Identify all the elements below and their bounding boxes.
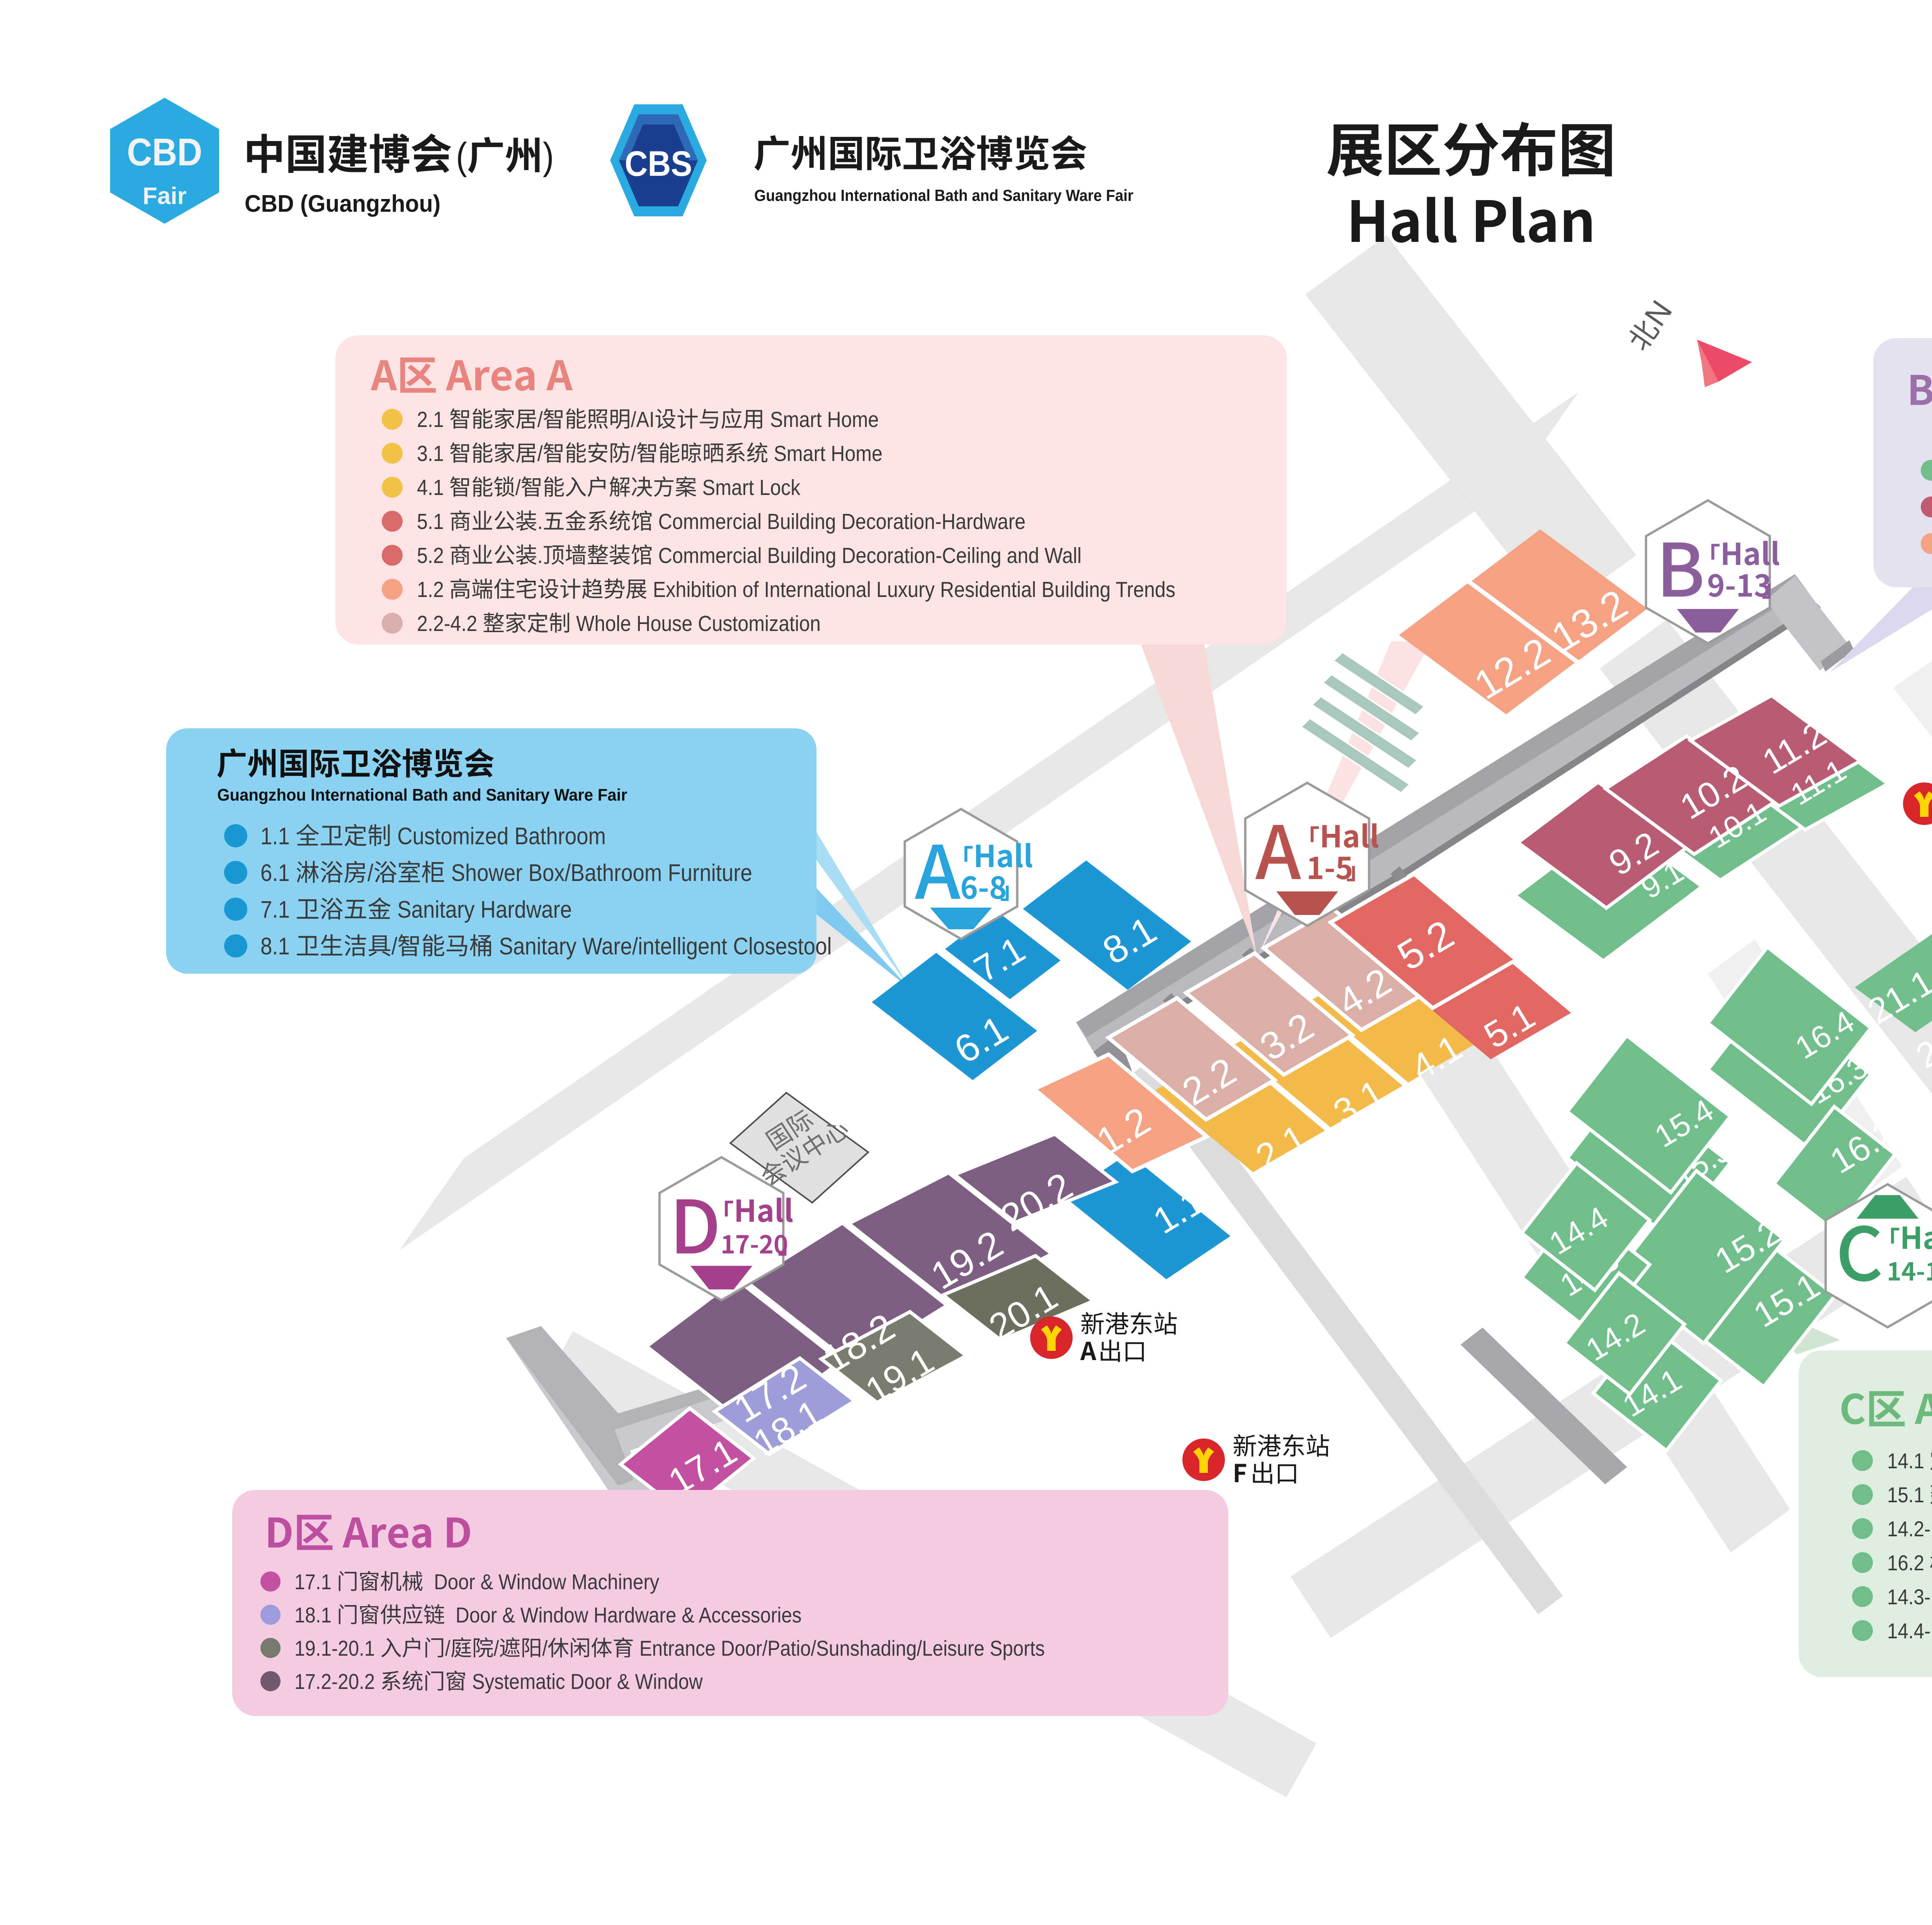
svg-text:CBD: CBD xyxy=(127,131,202,174)
svg-text:Entrance Door/Patio/Sunshading: Entrance Door/Patio/Sunshading/Leisure S… xyxy=(634,1636,1045,1660)
svg-text:/: / xyxy=(537,407,543,432)
svg-text:.: . xyxy=(537,509,543,534)
svg-text:Door & Window Machinery: Door & Window Machinery xyxy=(423,1570,660,1594)
svg-text:Smart Lock: Smart Lock xyxy=(697,475,801,500)
svg-text:5.1: 5.1 xyxy=(417,509,449,534)
svg-text:/: / xyxy=(391,933,398,960)
svg-text:Guangzhou International Bath a: Guangzhou International Bath and Sanitar… xyxy=(754,186,1133,204)
svg-text:14.2-15.2: 14.2-15.2 xyxy=(1887,1517,1932,1541)
svg-text:Fair: Fair xyxy=(143,183,187,209)
svg-text:Customized Bathroom: Customized Bathroom xyxy=(391,823,606,850)
svg-text:): ) xyxy=(543,135,554,177)
svg-text:14.3-16.3: 14.3-16.3 xyxy=(1887,1585,1932,1609)
svg-text:/: / xyxy=(494,1636,499,1660)
svg-text:4.1: 4.1 xyxy=(417,475,449,500)
svg-text:1.2: 1.2 xyxy=(417,577,449,602)
svg-text:/: / xyxy=(537,441,543,466)
svg-text:6.1: 6.1 xyxy=(260,860,296,886)
svg-text:Sanitary Ware/intelligent Clos: Sanitary Ware/intelligent Closestool xyxy=(493,933,832,960)
svg-text:18.1: 18.1 xyxy=(294,1603,337,1627)
svg-text:Smart Home: Smart Home xyxy=(765,407,879,432)
svg-text:(: ( xyxy=(456,135,467,177)
svg-text:Guangzhou International Bath a: Guangzhou International Bath and Sanitar… xyxy=(217,786,627,804)
svg-text:/: / xyxy=(542,1636,548,1660)
svg-text:8.1: 8.1 xyxy=(260,933,296,960)
svg-text:.: . xyxy=(537,543,543,568)
svg-text:1.1: 1.1 xyxy=(260,823,296,850)
svg-text:Whole House Customization: Whole House Customization xyxy=(571,611,821,636)
svg-text:17.1: 17.1 xyxy=(294,1570,337,1594)
svg-text:Systematic Door & Window: Systematic Door & Window xyxy=(467,1669,703,1694)
svg-text:Commercial Building Decoration: Commercial Building Decoration-Hardware xyxy=(653,509,1026,534)
svg-text:CBD (Guangzhou): CBD (Guangzhou) xyxy=(245,190,440,217)
svg-text:Exhibition of International Lu: Exhibition of International Luxury Resid… xyxy=(648,577,1175,602)
svg-text:/: / xyxy=(515,475,521,500)
svg-text:2.1: 2.1 xyxy=(417,407,449,432)
svg-text:16.2: 16.2 xyxy=(1887,1551,1930,1575)
svg-text:Smart Home: Smart Home xyxy=(769,441,883,466)
svg-text:CBS: CBS xyxy=(625,144,692,184)
svg-text:Shower Box/Bathroom Furniture: Shower Box/Bathroom Furniture xyxy=(445,860,752,886)
svg-text:14.4-15.4: 14.4-15.4 xyxy=(1887,1619,1932,1643)
svg-text:19.1-20.1: 19.1-20.1 xyxy=(294,1636,380,1660)
svg-text:/: / xyxy=(631,441,636,466)
svg-text:Commercial Building Decoration: Commercial Building Decoration-Ceiling a… xyxy=(653,543,1082,568)
svg-text:/AI: /AI xyxy=(631,407,655,432)
svg-text:5.2: 5.2 xyxy=(417,543,449,568)
svg-text:14.1: 14.1 xyxy=(1887,1449,1930,1473)
svg-text:15.1: 15.1 xyxy=(1887,1483,1930,1507)
svg-text:/: / xyxy=(367,860,374,886)
svg-text:Door & Window Hardware & Acces: Door & Window Hardware & Accessories xyxy=(445,1603,802,1627)
svg-text:17.2-20.2: 17.2-20.2 xyxy=(294,1669,380,1694)
svg-text:3.1: 3.1 xyxy=(417,441,449,466)
svg-text:2.2-4.2: 2.2-4.2 xyxy=(417,611,483,636)
svg-text:7.1: 7.1 xyxy=(260,896,296,923)
svg-text:/: / xyxy=(445,1636,451,1660)
svg-text:Sanitary Hardware: Sanitary Hardware xyxy=(391,896,572,923)
